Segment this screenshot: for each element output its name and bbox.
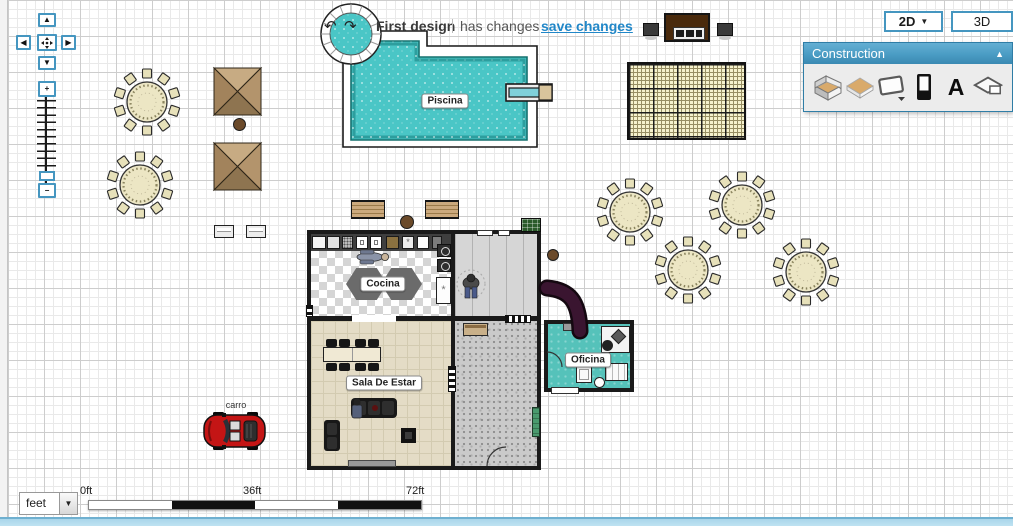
construction-panel-header[interactable]: Construction ▲ xyxy=(804,43,1012,64)
car-label: carro xyxy=(226,400,247,410)
ruler-label-0: 0ft xyxy=(80,485,92,497)
floorplanner-app: * * xyxy=(0,0,1013,526)
tool-build-walls[interactable] xyxy=(812,70,844,104)
cabinet[interactable] xyxy=(417,236,429,249)
dining-chair[interactable] xyxy=(368,363,379,371)
surfaces-icon xyxy=(972,72,1004,102)
view-3d-label: 3D xyxy=(974,14,991,29)
stereo-knob xyxy=(696,30,702,37)
window[interactable] xyxy=(477,230,493,236)
counter-item[interactable] xyxy=(386,236,399,249)
stereo-cabinet[interactable] xyxy=(664,13,710,42)
interior-wall-vertical[interactable] xyxy=(451,234,455,466)
washer[interactable] xyxy=(437,244,451,257)
door-icon xyxy=(911,72,937,102)
fridge[interactable] xyxy=(312,236,326,249)
text-icon: A xyxy=(948,76,965,99)
pan-left-button[interactable]: ◀ xyxy=(16,35,31,50)
dining-chair[interactable] xyxy=(339,363,350,371)
scale-ruler xyxy=(88,500,422,510)
vertical-scrollbar[interactable] xyxy=(0,0,8,517)
speaker-stand xyxy=(645,36,657,40)
sink[interactable] xyxy=(356,236,368,249)
dining-table[interactable] xyxy=(323,347,381,362)
dining-chair[interactable] xyxy=(355,339,366,347)
pan-down-button[interactable]: ▼ xyxy=(38,56,56,70)
dining-chair[interactable] xyxy=(326,363,337,371)
side-table[interactable] xyxy=(401,428,416,443)
pan-right-button[interactable]: ▶ xyxy=(61,35,76,50)
desk-chair[interactable] xyxy=(602,340,613,351)
ruler-label-36: 36ft xyxy=(243,485,261,497)
window-caret-icon xyxy=(898,97,905,101)
parasol[interactable] xyxy=(214,143,261,190)
garden-bench[interactable] xyxy=(351,200,385,219)
ruler-segment xyxy=(172,501,255,509)
monitor xyxy=(611,329,627,345)
sink[interactable] xyxy=(370,236,382,249)
pan-center-button[interactable] xyxy=(37,34,57,51)
unit-select-dropdown-button[interactable]: ▼ xyxy=(59,492,78,515)
ruler-segment xyxy=(338,501,421,509)
tool-draw-surfaces[interactable] xyxy=(972,70,1004,104)
office-chair[interactable] xyxy=(576,366,592,383)
stove[interactable] xyxy=(342,236,353,249)
door-opening[interactable] xyxy=(352,315,396,322)
stereo-knob xyxy=(686,30,694,37)
lattice-patio[interactable] xyxy=(627,62,746,140)
horizontal-scrollbar[interactable] xyxy=(0,517,1013,526)
caret-down-icon: ▼ xyxy=(920,17,928,26)
ruler-label-72: 72ft xyxy=(406,485,424,497)
minus-icon: − xyxy=(45,187,50,195)
view-2d-label: 2D xyxy=(899,14,916,29)
room-label-cocina: Cocina xyxy=(360,277,405,292)
status-text: has changes xyxy=(460,18,539,34)
radiator-panel[interactable] xyxy=(532,407,540,437)
sports-car[interactable] xyxy=(204,412,265,450)
right-arrow-icon: ▶ xyxy=(65,39,71,47)
zoom-out-button[interactable]: − xyxy=(38,183,56,198)
plant-pot[interactable] xyxy=(400,215,414,229)
left-arrow-icon: ◀ xyxy=(20,39,26,47)
plant-pot[interactable] xyxy=(233,118,246,131)
undo-icon[interactable]: ↶ xyxy=(324,17,337,35)
up-arrow-icon: ▲ xyxy=(43,16,51,24)
garden-stool[interactable] xyxy=(214,225,234,238)
stereo-knob xyxy=(676,30,684,37)
tool-place-text[interactable]: A xyxy=(940,70,972,104)
window[interactable] xyxy=(306,305,313,317)
armchair[interactable] xyxy=(324,420,340,451)
dining-chair[interactable] xyxy=(355,363,366,371)
window[interactable] xyxy=(505,315,531,323)
pan-up-button[interactable]: ▲ xyxy=(38,13,56,27)
surface-icon xyxy=(844,72,876,102)
room-label-piscina: Piscina xyxy=(421,94,468,109)
collapse-icon[interactable]: ▲ xyxy=(995,49,1004,59)
speaker[interactable] xyxy=(643,23,659,36)
dining-chair[interactable] xyxy=(326,339,337,347)
down-arrow-icon: ▼ xyxy=(43,59,51,67)
wall-shelf[interactable] xyxy=(463,323,488,336)
redo-icon[interactable]: ↷ xyxy=(344,17,357,35)
plant-pot[interactable] xyxy=(547,249,559,261)
save-changes-link[interactable]: save changes xyxy=(541,18,633,34)
speaker-stand xyxy=(719,36,731,40)
solar-panel[interactable] xyxy=(521,218,541,232)
dryer[interactable] xyxy=(437,259,451,272)
window-icon xyxy=(876,72,908,102)
kitchen-counter[interactable]: * xyxy=(311,234,451,251)
dining-chair[interactable] xyxy=(339,339,350,347)
window[interactable] xyxy=(551,387,579,394)
room-label-oficina: Oficina xyxy=(565,353,611,368)
tool-place-window[interactable] xyxy=(876,70,908,104)
garden-bench[interactable] xyxy=(425,200,459,219)
speaker[interactable] xyxy=(717,23,733,36)
parasol[interactable] xyxy=(214,68,261,115)
design-title: First design xyxy=(376,18,455,34)
caret-down-icon: ▼ xyxy=(65,499,73,508)
stereo-face xyxy=(673,27,705,40)
walls-icon xyxy=(812,72,844,102)
sofa-cushion-item xyxy=(372,405,378,411)
tool-place-door[interactable] xyxy=(908,70,940,104)
plus-icon: + xyxy=(45,85,50,93)
construction-panel: Construction ▲ xyxy=(803,42,1013,112)
construction-tools-row: A xyxy=(804,64,1012,108)
construction-panel-title: Construction xyxy=(812,46,885,61)
garden-stool[interactable] xyxy=(246,225,266,238)
kitchen-tall-unit[interactable]: * xyxy=(436,277,451,304)
ruler-segment xyxy=(255,501,338,509)
doormat[interactable] xyxy=(348,460,396,467)
diving-board[interactable] xyxy=(506,84,552,101)
dining-chair[interactable] xyxy=(368,339,379,347)
unit-select[interactable]: feet xyxy=(19,492,60,515)
room-label-sala: Sala De Estar xyxy=(346,376,422,391)
zoom-slider-ticks xyxy=(37,100,56,172)
ruler-segment xyxy=(89,501,172,509)
tool-draw-surface[interactable] xyxy=(844,70,876,104)
titlebar-separator xyxy=(452,19,453,33)
window[interactable] xyxy=(448,366,456,392)
move-icon xyxy=(41,37,53,49)
view-2d-button[interactable]: 2D ▼ xyxy=(884,11,943,32)
zoom-slider-handle[interactable] xyxy=(39,171,55,181)
dishwasher[interactable]: * xyxy=(402,236,414,249)
window[interactable] xyxy=(498,230,510,236)
zoom-in-button[interactable]: + xyxy=(38,81,56,97)
person-sitting[interactable] xyxy=(352,398,362,418)
office-stool[interactable] xyxy=(594,377,605,388)
view-3d-button[interactable]: 3D xyxy=(951,11,1013,32)
interior-wall-horizontal[interactable] xyxy=(311,316,537,321)
fridge[interactable] xyxy=(327,236,340,249)
